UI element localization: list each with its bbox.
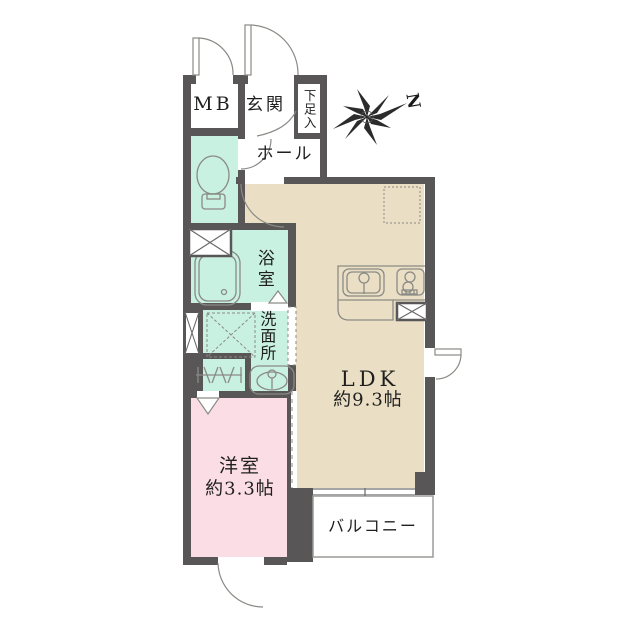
label-ldk-size: 約9.3帖	[333, 392, 403, 411]
wall-balcony-left-block	[287, 488, 313, 562]
wall-right-outer	[425, 177, 435, 348]
wall-bottom	[183, 557, 218, 565]
label-washroom: 洗面所	[258, 311, 275, 362]
western-room-door-opening	[197, 391, 219, 398]
label-hall: ホール	[257, 146, 314, 164]
label-balcony: バルコニー	[328, 519, 418, 536]
label-western-room: 洋室	[219, 457, 261, 477]
compass-north-icon: N	[333, 89, 424, 145]
label-western-room-size: 約3.3帖	[205, 481, 275, 500]
wall-top	[183, 75, 196, 84]
floor-plan: N MB 玄関 下足入 ホール 浴室 洗面所 LDK 約9.3帖 洋室 約3.3…	[0, 0, 640, 640]
wall-mb-divider	[238, 75, 245, 139]
wall-western-right	[287, 391, 291, 488]
wall-bathroom-right	[288, 230, 296, 307]
label-mb: MB	[193, 95, 232, 115]
pipe-space-strip	[185, 312, 199, 354]
label-ldk: LDK	[341, 368, 399, 390]
washroom-sliding-door	[288, 307, 296, 365]
front-door	[245, 25, 298, 75]
wall-shoebox-left	[294, 84, 298, 133]
wall-ldk-top	[320, 177, 435, 184]
floor-plan-drawing: N	[0, 0, 640, 640]
label-shoe-cabinet: 下足入	[302, 89, 315, 130]
wall-mb-bottom	[191, 128, 238, 136]
wall-hall-ldk	[284, 177, 326, 184]
label-bathroom: 浴室	[254, 249, 272, 291]
wall-hall-stub	[236, 177, 242, 184]
mb-door	[193, 38, 233, 75]
label-entrance: 玄関	[246, 97, 286, 115]
western-room-door-arc	[218, 563, 263, 607]
wall-entrance-right	[320, 75, 327, 184]
ldk-side-door	[435, 349, 461, 379]
wall-bottom	[264, 557, 287, 565]
kitchen-pipe-space-box	[397, 303, 427, 320]
compass-north-label: N	[401, 92, 423, 111]
western-room-floor	[191, 398, 288, 557]
pipe-space-box	[189, 229, 231, 256]
wall-right-outer	[425, 377, 435, 472]
wall-corner-block	[415, 472, 435, 495]
